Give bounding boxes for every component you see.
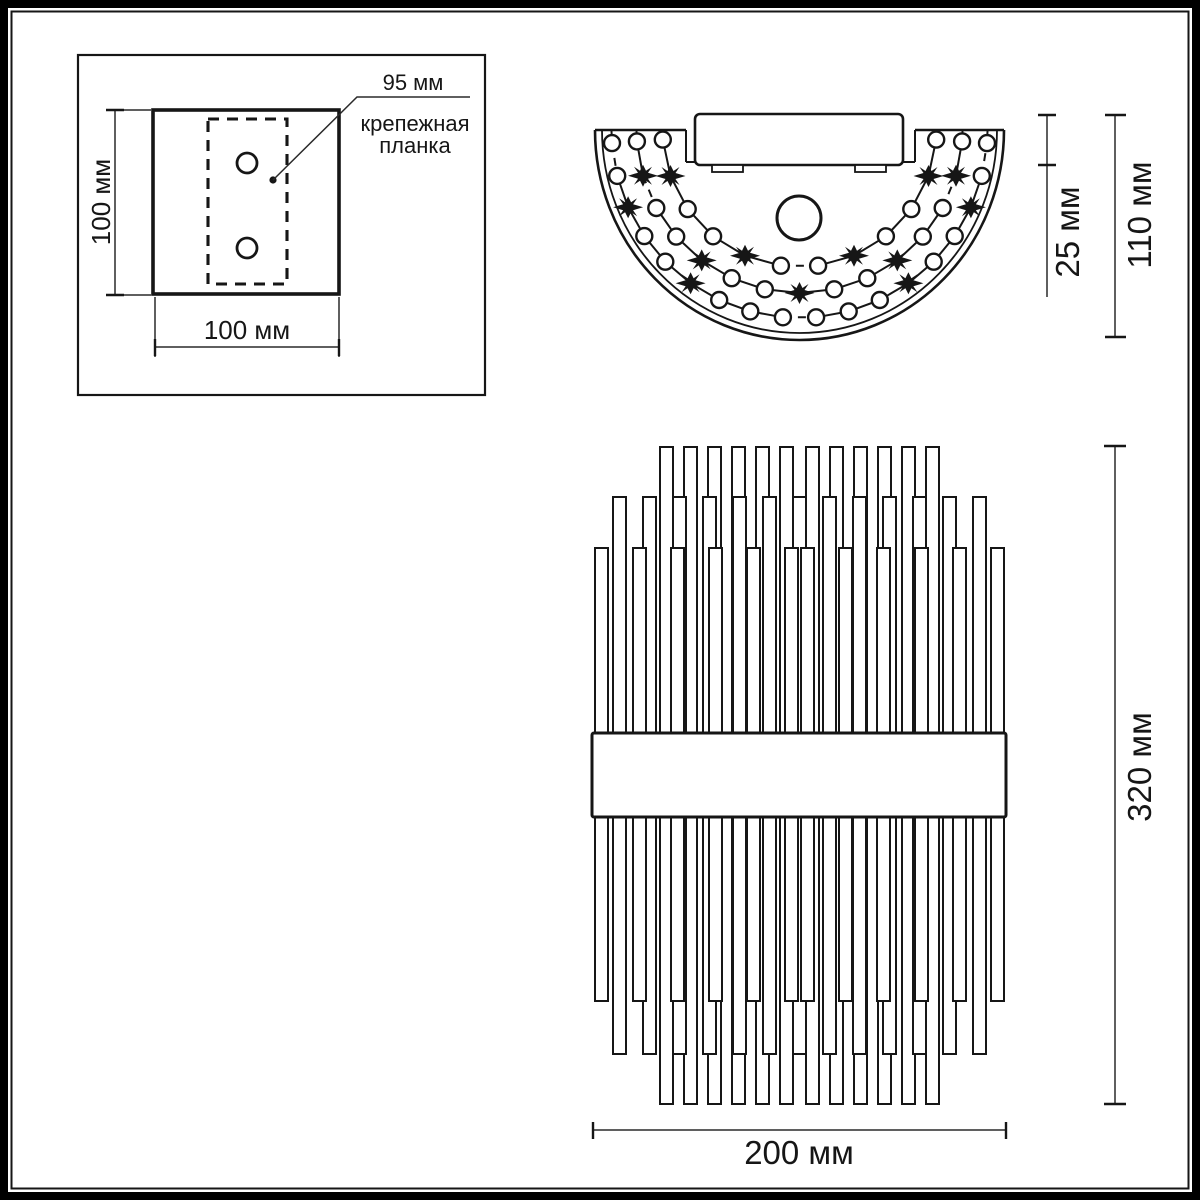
bracket-width-label: 95 мм <box>383 70 444 95</box>
glass-bead <box>947 228 963 244</box>
screw-hole-top <box>237 153 257 173</box>
glass-bead <box>757 281 773 297</box>
plate-height-label: 100 мм <box>86 159 116 245</box>
box-depth-label: 25 мм <box>1049 186 1086 277</box>
glass-bead <box>872 292 888 308</box>
front-view: 320 мм 200 мм <box>592 446 1158 1171</box>
driver-box-foot-left <box>712 165 743 172</box>
glass-bead <box>859 270 875 286</box>
glass-bead <box>878 228 894 244</box>
mounting-plate-view: 95 мм крепежная планка 100 мм 100 мм <box>78 55 485 395</box>
plate-width-label: 100 мм <box>204 315 290 345</box>
glass-bead <box>742 303 758 319</box>
total-depth-dimension: 110 мм <box>1105 115 1158 337</box>
glass-bead <box>604 135 620 151</box>
glass-bead <box>935 200 951 216</box>
driver-box-foot-right <box>855 165 886 172</box>
front-height-label: 320 мм <box>1121 712 1158 822</box>
glass-bead <box>629 133 645 149</box>
glass-bead <box>636 228 652 244</box>
glass-bead <box>974 168 990 184</box>
glass-bead <box>826 281 842 297</box>
glass-bead <box>841 303 857 319</box>
glass-bead <box>954 133 970 149</box>
glass-bead <box>724 270 740 286</box>
sconce-dimension-diagram: 95 мм крепежная планка 100 мм 100 мм <box>0 0 1200 1200</box>
glass-bead <box>926 254 942 270</box>
glass-bead <box>979 135 995 151</box>
glass-bead <box>609 168 625 184</box>
technical-drawing-sheet: 95 мм крепежная планка 100 мм 100 мм <box>0 0 1200 1200</box>
front-width-label: 200 мм <box>744 1134 854 1171</box>
center-band <box>592 733 1006 817</box>
wall-plate-outline <box>153 110 339 294</box>
driver-box <box>695 114 903 165</box>
bracket-name-line2: планка <box>379 133 451 158</box>
top-view: 25 мм 110 мм <box>595 114 1158 340</box>
glass-bead <box>775 309 791 325</box>
screw-hole-bottom <box>237 238 257 258</box>
glass-bead <box>655 132 671 148</box>
front-width-dimension: 200 мм <box>593 1122 1006 1171</box>
glass-bead <box>773 258 789 274</box>
glass-bead <box>705 228 721 244</box>
glass-bead <box>915 229 931 245</box>
total-depth-label: 110 мм <box>1121 161 1158 268</box>
glass-bead <box>711 292 727 308</box>
glass-bead <box>808 309 824 325</box>
front-height-dimension: 320 мм <box>1104 446 1158 1104</box>
glass-bead <box>903 201 919 217</box>
glass-bead <box>928 132 944 148</box>
glass-bead <box>680 201 696 217</box>
glass-bead <box>668 229 684 245</box>
socket-circle <box>777 196 821 240</box>
glass-bead <box>648 200 664 216</box>
glass-bead <box>657 254 673 270</box>
box-depth-dimension: 25 мм <box>1038 115 1086 297</box>
glass-bead <box>810 258 826 274</box>
